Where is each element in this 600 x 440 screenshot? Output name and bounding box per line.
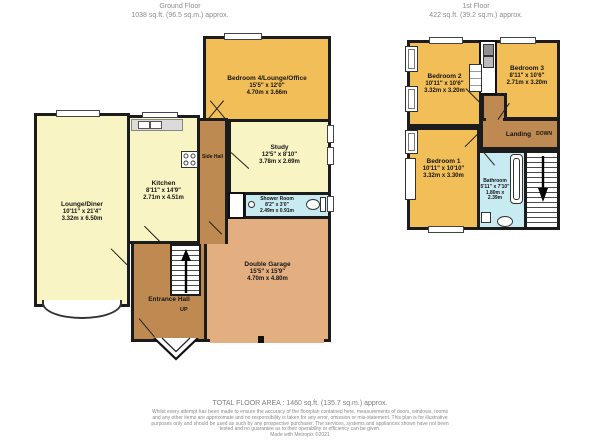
room-label: Bathroom 5'11" x 7'10" 1.80m x 2.39m bbox=[480, 179, 510, 202]
room-label: Double Garage 15'5" x 15'9" 4.70m x 4.80… bbox=[207, 261, 328, 283]
room-label: Bedroom 4/Lounge/Office 15'5" x 12'0" 4.… bbox=[206, 75, 328, 97]
landing-label-row: Landing DOWN bbox=[483, 121, 552, 147]
room-dims-m: 2.49m x 0.91m bbox=[250, 209, 304, 215]
garage-door-post bbox=[258, 336, 264, 343]
room-name: Entrance Hall bbox=[134, 296, 204, 304]
room-label: Entrance Hall bbox=[134, 296, 204, 304]
room-name: Kitchen bbox=[130, 180, 197, 188]
sink-icon bbox=[481, 212, 491, 223]
bay-window bbox=[42, 300, 122, 319]
first-floor-name: 1st Floor bbox=[376, 2, 576, 11]
sink-icon bbox=[248, 201, 255, 208]
landing-junction bbox=[486, 118, 503, 123]
bathtub-icon bbox=[510, 154, 523, 204]
first-floor-area: 422 sq.ft. (39.2 sq.m.) approx. bbox=[376, 11, 576, 20]
stairs-up bbox=[170, 244, 201, 296]
room-name: Side Hall bbox=[200, 153, 225, 161]
window bbox=[500, 37, 536, 44]
stairs-direction-label: UP bbox=[180, 307, 188, 313]
total-floor-area: TOTAL FLOOR AREA : 1460 sq.ft. (135.7 sq… bbox=[0, 400, 600, 407]
room-name: Landing bbox=[506, 131, 531, 138]
cupboard-icon bbox=[483, 44, 494, 56]
credit-text: Made with Metropix ©2021 bbox=[0, 432, 600, 438]
room-dims-ft: 8'11" x 14'9" bbox=[130, 188, 197, 195]
up-arrow-icon bbox=[180, 249, 192, 293]
room-dims-ft: 8'11" x 10'6" bbox=[497, 73, 557, 80]
room-bedroom4-lounge-office: Bedroom 4/Lounge/Office 15'5" x 12'0" 4.… bbox=[203, 36, 331, 122]
room-dims-m: 3.32m x 3.30m bbox=[410, 173, 477, 180]
room-name: Double Garage bbox=[207, 261, 328, 269]
window bbox=[327, 147, 334, 165]
wardrobe-icon bbox=[405, 46, 418, 72]
room-dims-m: 4.70m x 3.66m bbox=[206, 90, 328, 97]
wardrobe-icon bbox=[405, 130, 418, 154]
room-dims-m: 2.71m x 4.51m bbox=[130, 195, 197, 202]
room-dims-m: 3.32m x 6.50m bbox=[37, 216, 127, 223]
room-kitchen: Kitchen 8'11" x 14'9" 2.71m x 4.51m bbox=[127, 115, 200, 244]
stairs-direction-label: DOWN bbox=[536, 131, 552, 137]
window bbox=[429, 37, 463, 44]
room-name: Bedroom 4/Lounge/Office bbox=[206, 75, 328, 83]
ground-floor-area: 1038 sq.ft. (96.5 sq.m.) approx. bbox=[80, 11, 280, 20]
front-door-porch-icon bbox=[152, 338, 200, 364]
wardrobe-icon bbox=[405, 86, 418, 112]
room-dims-ft: 15'5" x 15'9" bbox=[207, 269, 328, 276]
bathtub-inner bbox=[513, 158, 520, 200]
room-name: Lounge/Diner bbox=[37, 201, 127, 209]
room-dims-ft: 15'5" x 12'0" bbox=[206, 83, 328, 90]
toilet-icon bbox=[306, 199, 320, 210]
room-dims-ft: 12'5" x 8'10" bbox=[231, 152, 328, 159]
cupboard-icon bbox=[228, 192, 245, 219]
stove-icon bbox=[181, 151, 198, 168]
garage-door bbox=[210, 338, 324, 343]
cistern-icon bbox=[320, 197, 326, 212]
room-study: Study 12'5" x 8'10" 3.78m x 2.69m bbox=[228, 119, 331, 195]
room-label: Side Hall bbox=[200, 153, 225, 161]
room-label: Bedroom 3 8'11" x 10'6" 2.71m x 3.20m bbox=[497, 65, 557, 87]
cupboard-icon bbox=[483, 56, 494, 68]
window bbox=[428, 226, 464, 233]
window bbox=[142, 112, 178, 118]
room-name: Bedroom 3 bbox=[497, 65, 557, 73]
room-dims-m: 1.80m x 2.39m bbox=[480, 191, 510, 203]
stairs-down bbox=[524, 150, 560, 230]
room-name: Bedroom 1 bbox=[410, 158, 477, 166]
wardrobe-inner bbox=[408, 49, 415, 69]
kitchen-sink-icon bbox=[138, 121, 162, 129]
ground-floor-title: Ground Floor 1038 sq.ft. (96.5 sq.m.) ap… bbox=[80, 2, 280, 20]
room-label: Kitchen 8'11" x 14'9" 2.71m x 4.51m bbox=[130, 180, 197, 202]
room-label: Bedroom 1 10'11" x 10'10" 3.32m x 3.30m bbox=[410, 158, 477, 180]
down-arrow-icon bbox=[537, 156, 549, 202]
window bbox=[224, 33, 262, 40]
disclaimer-text: Whilst every attempt has been made to en… bbox=[150, 410, 450, 433]
floorplan-canvas: Ground Floor 1038 sq.ft. (96.5 sq.m.) ap… bbox=[0, 0, 600, 440]
toilet-icon bbox=[497, 216, 513, 227]
room-dims-ft: 10'11" x 10'10" bbox=[410, 166, 477, 173]
room-lounge-diner: Lounge/Diner 10'11" x 21'4" 3.32m x 6.50… bbox=[34, 113, 130, 307]
built-in-wardrobe-icon bbox=[405, 158, 416, 200]
room-label: Lounge/Diner 10'11" x 21'4" 3.32m x 6.50… bbox=[37, 201, 127, 223]
first-floor-title: 1st Floor 422 sq.ft. (39.2 sq.m.) approx… bbox=[376, 2, 576, 20]
chest-of-drawers-icon bbox=[469, 64, 482, 92]
room-label: Study 12'5" x 8'10" 3.78m x 2.69m bbox=[231, 144, 328, 166]
room-dims-m: 2.71m x 3.20m bbox=[497, 80, 557, 87]
room-label: Shower Room 8'2" x 3'0" 2.49m x 0.91m bbox=[250, 197, 304, 214]
wardrobe-inner bbox=[408, 133, 415, 151]
room-dims-ft: 10'11" x 21'4" bbox=[37, 209, 127, 216]
room-name: Study bbox=[231, 144, 328, 152]
window bbox=[327, 196, 334, 212]
room-dims-m: 4.70m x 4.80m bbox=[207, 276, 328, 283]
window bbox=[56, 110, 100, 117]
wardrobe-inner bbox=[408, 89, 415, 109]
window bbox=[327, 125, 334, 143]
ground-floor-name: Ground Floor bbox=[80, 2, 280, 11]
